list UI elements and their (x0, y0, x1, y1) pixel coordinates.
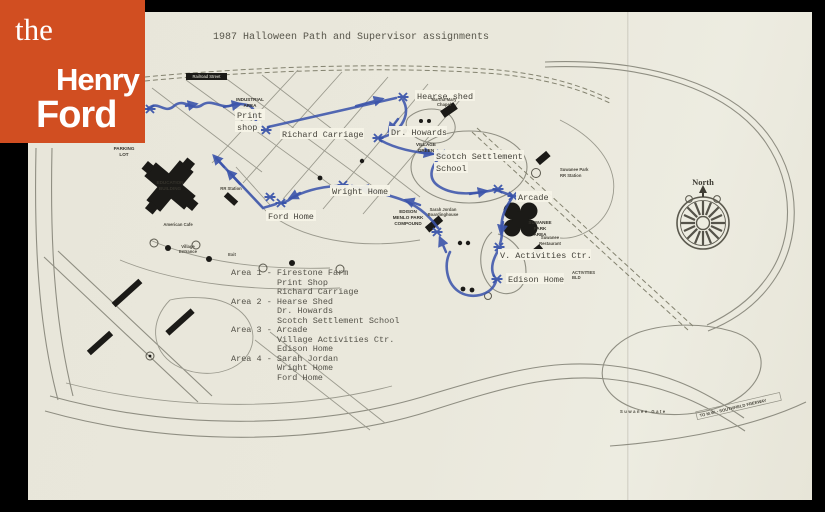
label-menlo-2: MENLO PARK (393, 215, 424, 220)
label-activities-ctr: V. Activities Ctr. (500, 251, 592, 261)
label-edison-home: Edison Home (508, 275, 564, 285)
label-industrial-1: INDUSTRIAL (236, 97, 264, 102)
label-suwanee-sta-2: RR Station (560, 173, 582, 178)
label-menlo-1: EDISON (399, 209, 417, 214)
legend-line: Ford Home (231, 374, 399, 384)
label-entrance-2: Entrance (179, 249, 198, 254)
compass-rose: North (677, 177, 729, 249)
label-industrial-2: AREA (243, 103, 257, 108)
path-marker (373, 134, 384, 142)
path-marker (276, 199, 287, 207)
perimeter-roads (45, 62, 806, 446)
label-suwanee-sta-1: Suwanee Park (560, 167, 589, 172)
label-scotch-1: Scotch Settlement (436, 152, 523, 162)
label-american-cafe: American Cafe (163, 222, 193, 227)
label-martha-2: Chapel (437, 102, 451, 107)
label-education-2: BUILDING (159, 186, 182, 191)
site-labels: Hearse shed Print shop Richard Carriage … (235, 90, 592, 285)
path-marker (265, 193, 276, 201)
label-parking-2: LOT (119, 152, 128, 157)
area-assignment-list: Area 1 - Firestone Farm Print Shop Richa… (231, 269, 399, 383)
label-activities-bld-2: BLD (572, 275, 581, 280)
label-menlo-3: COMPOUND (394, 221, 422, 226)
henry-ford-logo: the Henry Ford (0, 0, 145, 143)
label-dr-howards: Dr. Howards (391, 128, 447, 138)
compass-spokes (681, 201, 725, 245)
label-parking-1: PARKING (114, 146, 135, 151)
label-suwanee-gate: Suwanee Gate (620, 409, 667, 414)
label-suwanee-park-2: PARK (534, 226, 547, 231)
label-scotch-2: School (436, 164, 467, 174)
path-marker (261, 126, 272, 134)
scanned-map-document: 1987 Halloween Path and Supervisor assig… (0, 0, 825, 512)
label-education-1: EDUCATION (157, 180, 185, 185)
label-green-1: VILLAGE (416, 142, 436, 147)
label-ford-home: Ford Home (268, 212, 314, 222)
path-arrows (186, 99, 503, 252)
label-print: Print (237, 111, 263, 121)
label-suwanee-rest-1: Suwanee (541, 235, 560, 240)
label-rr-station: RR Station (220, 186, 242, 191)
label-green-2: GREEN (418, 148, 435, 153)
railroad-top (145, 66, 612, 104)
map-title: 1987 Halloween Path and Supervisor assig… (213, 32, 489, 43)
label-richard-carriage: Richard Carriage (282, 130, 364, 140)
label-shop: shop (237, 123, 257, 133)
railroad-street-label: Railroad Street (193, 74, 222, 79)
label-wright-home: Wright Home (332, 187, 388, 197)
logo-the: the (15, 12, 53, 48)
logo-ford: Ford (36, 94, 116, 137)
path-marker (432, 228, 443, 236)
label-sarah-2: Boardinghouse (428, 212, 459, 217)
label-exit: Exit (228, 252, 236, 257)
label-arcade: Arcade (518, 193, 549, 203)
label-suwanee-park-1: SUWANEE (528, 220, 551, 225)
label-suwanee-rest-2: Restaurant (539, 241, 561, 246)
logo-henry: Henry (56, 62, 139, 98)
